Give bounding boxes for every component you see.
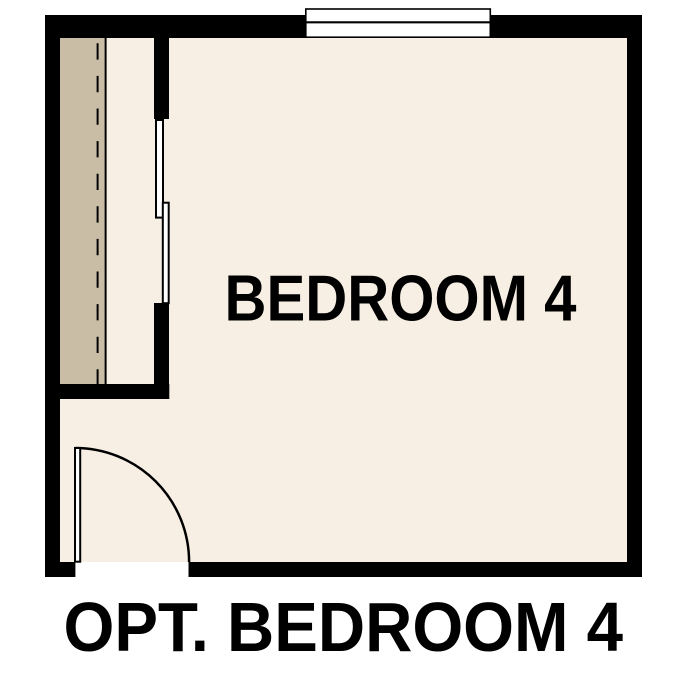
svg-text:OPT. BEDROOM 4: OPT. BEDROOM 4 xyxy=(64,588,624,666)
svg-text:BEDROOM 4: BEDROOM 4 xyxy=(225,262,577,334)
